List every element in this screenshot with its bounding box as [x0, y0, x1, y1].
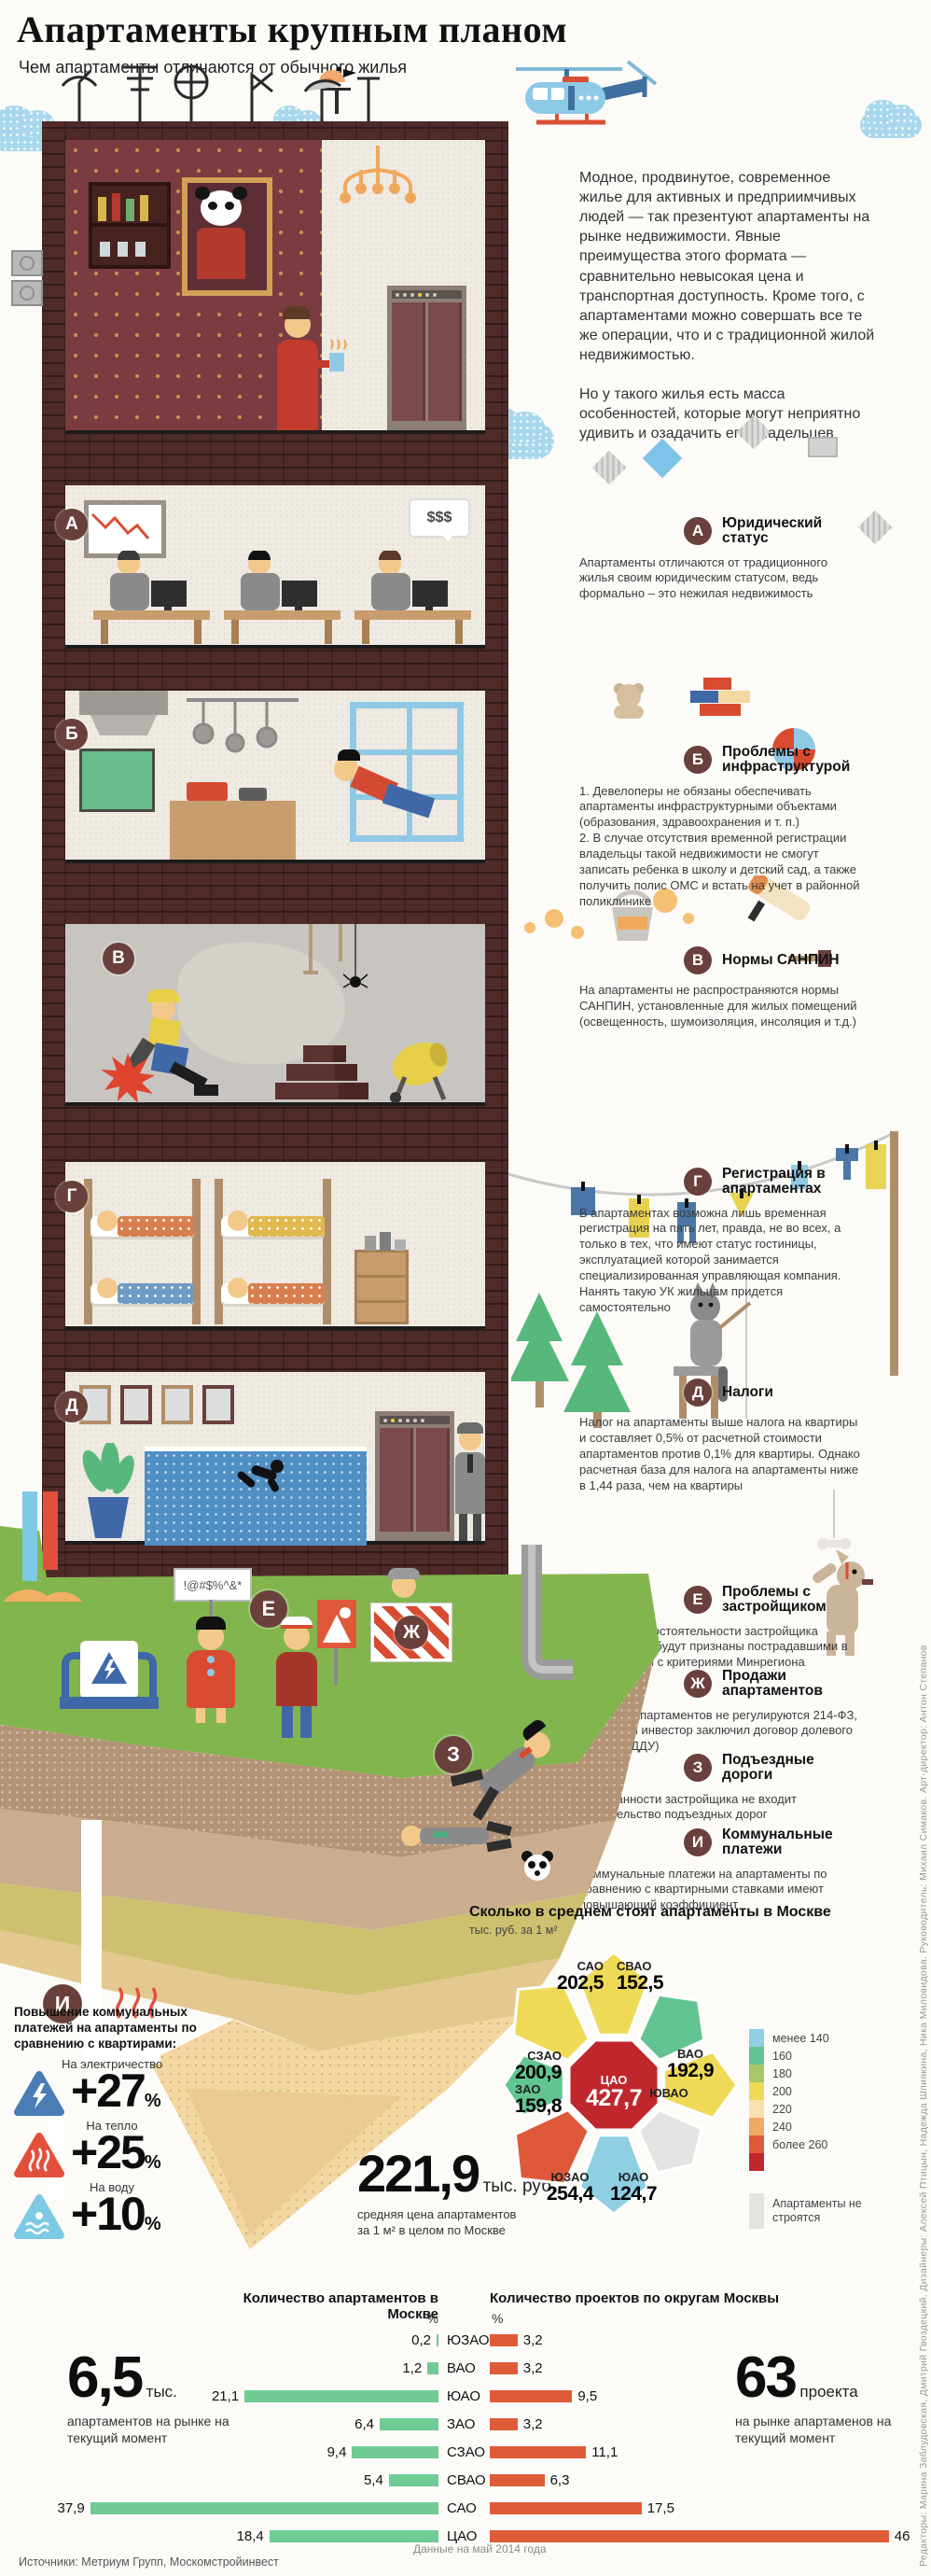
- floor-bedroom: [65, 1162, 485, 1330]
- section-body: 1. Девелоперы не обязаны обеспечивать ап…: [579, 784, 863, 910]
- section-title: Регистрация в апартаментах: [722, 1167, 863, 1197]
- legend-label: 240: [764, 2121, 792, 2134]
- section-infrastructure: БПроблемы с инфраструктурой 1. Девелопер…: [579, 745, 863, 910]
- legend-label: 160: [764, 2050, 792, 2063]
- heat-increase-value: +25%: [71, 2132, 161, 2174]
- projects-bar: [490, 2418, 518, 2430]
- legend-label: 220: [764, 2103, 792, 2116]
- kitchen-hood: [79, 691, 168, 715]
- legend-swatch: [749, 2135, 764, 2153]
- bar-cabinet: [89, 182, 171, 269]
- projects-bar: [490, 2362, 518, 2374]
- projects-bar: [490, 2390, 572, 2402]
- legend-label: 180: [764, 2067, 792, 2080]
- green-chalkboard: [79, 749, 155, 812]
- section-title: Нормы САНПИН: [722, 953, 840, 968]
- paper-sheet-icon: [858, 511, 893, 545]
- ac-units-icon: [11, 250, 43, 308]
- district-category-label: ВАО: [438, 2360, 490, 2376]
- legend-swatch: [749, 2047, 764, 2065]
- projects-chart-unit: %: [492, 2311, 503, 2326]
- section-body: Апартаменты отличаются от традиционного …: [579, 555, 863, 603]
- legend-row: 200: [749, 2082, 829, 2100]
- apartments-total-highlight: 6,5 тыс. апартаментов на рынке на текущи…: [67, 2345, 244, 2446]
- resident-with-cup: [275, 299, 350, 430]
- district-category-label: ЮАО: [438, 2388, 490, 2404]
- zh-striped-sign: Ж: [371, 1603, 452, 1661]
- apartments-bar: [380, 2418, 438, 2430]
- section-letter-icon: В: [684, 946, 712, 974]
- bunk-bed: [84, 1179, 201, 1324]
- district-category-label: СЗАО: [438, 2444, 490, 2460]
- sources-note: Источники: Метриум Групп, Москомстройинв…: [19, 2555, 279, 2569]
- district-category-label: СВАО: [438, 2472, 490, 2488]
- utilities-heading: Повышение коммунальных платежей на апарт…: [14, 2005, 219, 2052]
- portrait-frames-row: [79, 1385, 234, 1424]
- floor-living-room: [65, 140, 485, 434]
- building-label-a: А: [56, 509, 88, 540]
- apartments-bar: [270, 2530, 438, 2542]
- apartments-bar: [352, 2446, 438, 2458]
- money-speech-bubble: $$$: [409, 498, 470, 538]
- apartments-bar: [244, 2390, 438, 2402]
- water-warning-icon: [13, 2193, 65, 2240]
- cement-mixer-icon: [381, 1036, 460, 1103]
- building-label-v: В: [103, 943, 134, 974]
- legend-row: 160: [749, 2047, 829, 2065]
- section-body: На апартаменты не распространяются нормы…: [579, 983, 863, 1030]
- projects-value: 6,3: [550, 2472, 570, 2488]
- building-label-d: Д: [56, 1391, 88, 1422]
- section-body: В апартаментах возможна лишь временная р…: [579, 1206, 863, 1316]
- legend-row: 240: [749, 2118, 829, 2135]
- chandelier-icon: [334, 146, 423, 228]
- section-title: Налоги: [722, 1385, 773, 1400]
- sparks-starburst-icon: [101, 1053, 155, 1103]
- elevator: [387, 286, 466, 430]
- apartments-value: 9,4: [327, 2444, 347, 2460]
- apartments-value: 18,4: [237, 2528, 264, 2544]
- legend-label: менее 140: [764, 2032, 829, 2045]
- legend-row: 180: [749, 2065, 829, 2082]
- page-title: Апартаменты крупным планом: [17, 7, 567, 51]
- section-title: Юридический статус: [722, 516, 863, 547]
- heat-warning-icon: [13, 2132, 65, 2178]
- legend-label: более 260: [764, 2138, 827, 2151]
- district-label-sao: САО202,5: [536, 1960, 604, 1993]
- district-category-label: САО: [438, 2500, 490, 2516]
- projects-total-highlight: 63 проекта на рынке апартаменов на текущ…: [735, 2345, 903, 2446]
- building-label-g: Г: [56, 1181, 88, 1212]
- fire-mountain-sign: [317, 1600, 356, 1648]
- projects-bar: [490, 2334, 518, 2346]
- building-cross-section: $$$: [42, 121, 508, 1577]
- apartments-value: 5,4: [364, 2472, 383, 2488]
- data-note: Данные на май 2014 года: [413, 2542, 547, 2555]
- legend-note-swatch: [749, 2193, 764, 2229]
- office-desks-row: [93, 551, 476, 644]
- legend-swatch: [749, 2100, 764, 2118]
- window-with-climbing-worker: [350, 702, 464, 842]
- map-legend: менее 140160180200220240более 260: [749, 2029, 829, 2171]
- section-letter-icon: Б: [684, 746, 712, 774]
- transformer-box-icon: [58, 1631, 160, 1714]
- projects-value: 9,5: [577, 2388, 597, 2404]
- section-registration: ГРегистрация в апартаментах В апартамент…: [579, 1167, 863, 1316]
- district-label-zao: ЗАО159,8: [515, 2083, 577, 2116]
- dresser: [354, 1250, 409, 1324]
- section-taxes: ДНалоги Налог на апартаменты выше налога…: [579, 1379, 863, 1493]
- paint-splash: [683, 913, 694, 924]
- district-label-szao: СЗАО200,9: [493, 2050, 562, 2082]
- sign-letter-zh: Ж: [395, 1616, 428, 1649]
- declining-chart-picture: [84, 500, 166, 558]
- bar-row-СВАО: 5,4СВАО6,3: [37, 2466, 914, 2494]
- lying-man: [401, 1818, 513, 1859]
- section-body: Налог на апартаменты выше налога на квар…: [579, 1415, 863, 1493]
- legend-row: 220: [749, 2100, 829, 2118]
- building-label-b: Б: [56, 719, 88, 750]
- paint-splash: [571, 926, 584, 939]
- protester-man-fire-sign: [276, 1600, 356, 1749]
- legend-swatch: [749, 2065, 764, 2082]
- infographic-poster: Апартаменты крупным планом Чем апартамен…: [0, 0, 931, 2576]
- apartments-value: 0,2: [411, 2332, 431, 2348]
- projects-bar: [490, 2502, 642, 2514]
- paint-splash: [524, 922, 535, 933]
- section-letter-icon: Д: [684, 1379, 712, 1407]
- projects-bar: [490, 2530, 889, 2542]
- credits-vertical: Редакторы: Марина Заблудовская, Дмитрий …: [918, 1605, 929, 2567]
- electricity-warning-icon: [13, 2070, 65, 2117]
- map-chart-title: Сколько в среднем стоят апартаменты в Мо…: [469, 1904, 831, 1921]
- district-label-vao: ВАО192,9: [657, 2048, 724, 2080]
- cloud-icon: [860, 112, 922, 138]
- apartments-value: 6,4: [354, 2416, 374, 2432]
- brick-pile: [275, 1043, 368, 1103]
- section-letter-icon: А: [684, 517, 712, 545]
- projects-bar: [490, 2474, 545, 2486]
- map-legend-note: Апартаменты не строятся: [749, 2193, 866, 2229]
- roof-antennas-icon: [51, 54, 387, 123]
- district-label-yuzao: ЮЗАО254,4: [539, 2171, 601, 2204]
- legend-note-label: Апартаменты не строятся: [764, 2197, 866, 2225]
- apartments-chart-unit: %: [401, 2311, 438, 2326]
- projects-value: 3,2: [523, 2360, 543, 2376]
- district-label-cao: ЦАО 427,7: [578, 2074, 649, 2110]
- teddy-bear-icon: [606, 678, 655, 721]
- envelope-icon: [808, 437, 838, 457]
- floor-kitchen: [65, 691, 485, 863]
- section-sanpin: ВНормы САНПИН На апартаменты не распрост…: [579, 946, 863, 1030]
- projects-value: 46: [895, 2528, 910, 2544]
- projects-value: 17,5: [647, 2500, 674, 2516]
- paint-splash: [545, 909, 563, 928]
- protester-woman: !@#$%^&*: [174, 1568, 248, 1727]
- floor-office: $$$: [65, 485, 485, 649]
- district-category-label: ЦАО: [438, 2528, 490, 2544]
- average-price-value: 221,9: [357, 2144, 479, 2203]
- apartments-bar: [90, 2502, 438, 2514]
- projects-value: 3,2: [523, 2416, 543, 2432]
- map-chart-unit-label: тыс. руб. за 1 м²: [469, 1924, 558, 1937]
- district-label-svao: СВАО152,5: [617, 1960, 684, 1993]
- hanging-ladles-icon: [187, 694, 299, 762]
- apartments-value: 37,9: [57, 2500, 84, 2516]
- water-increase-value: +10%: [71, 2193, 161, 2235]
- legend-swatch: [749, 2082, 764, 2100]
- apartments-value: 1,2: [402, 2360, 422, 2376]
- map-wedge-ЮВАО: [639, 2110, 702, 2173]
- panda-portrait: [182, 177, 272, 296]
- legend-row: менее 140: [749, 2029, 829, 2047]
- apartments-bar: [389, 2474, 438, 2486]
- bar-row-САО: 37,9САО17,5: [37, 2494, 914, 2522]
- helicopter-icon: [508, 60, 662, 133]
- bunk-bed: [215, 1179, 331, 1324]
- blue-diamond-icon: [643, 439, 682, 478]
- legend-row: более 260: [749, 2135, 829, 2153]
- kitchen-hood-funnel: [90, 715, 157, 735]
- district-label-yuvao: ЮВАО: [644, 2087, 694, 2099]
- intro-paragraph-2: Но у такого жилья есть масса особенносте…: [579, 385, 876, 443]
- apartments-bar: [427, 2362, 438, 2374]
- legend-swatch: [749, 2153, 764, 2171]
- projects-value: 3,2: [523, 2332, 543, 2348]
- projects-bar: [490, 2446, 586, 2458]
- district-label-yuao: ЮАО124,7: [603, 2171, 664, 2204]
- district-category-label: ЮЗАО: [438, 2332, 490, 2348]
- section-title: Проблемы с инфраструктурой: [722, 745, 863, 776]
- lego-bricks-icon: [683, 676, 754, 719]
- projects-chart-title: Количество проектов по округам Москвы: [490, 2290, 779, 2306]
- legend-swatch: [749, 2118, 764, 2135]
- legend-swatch: [749, 2029, 764, 2047]
- panda-head-icon: [519, 1850, 556, 1883]
- electricity-increase-value: +27%: [71, 2070, 161, 2112]
- paper-sheet-icon: [592, 451, 627, 485]
- bubble-tail: [440, 532, 455, 541]
- intro-paragraph-1: Модное, продвинутое, современное жилье д…: [579, 168, 876, 365]
- spider-icon: [343, 924, 368, 999]
- protest-sign: !@#$%^&*: [174, 1568, 252, 1602]
- legend-label: 200: [764, 2085, 792, 2098]
- section-legal-status: АЮридический статус Апартаменты отличают…: [579, 516, 863, 602]
- protester-man-zh-sign: Ж: [371, 1574, 448, 1686]
- projects-value: 11,1: [591, 2444, 618, 2460]
- kitchen-counter: [170, 801, 296, 860]
- district-category-label: ЗАО: [438, 2416, 490, 2432]
- section-letter-icon: Г: [684, 1168, 712, 1196]
- legend-row: [749, 2153, 829, 2171]
